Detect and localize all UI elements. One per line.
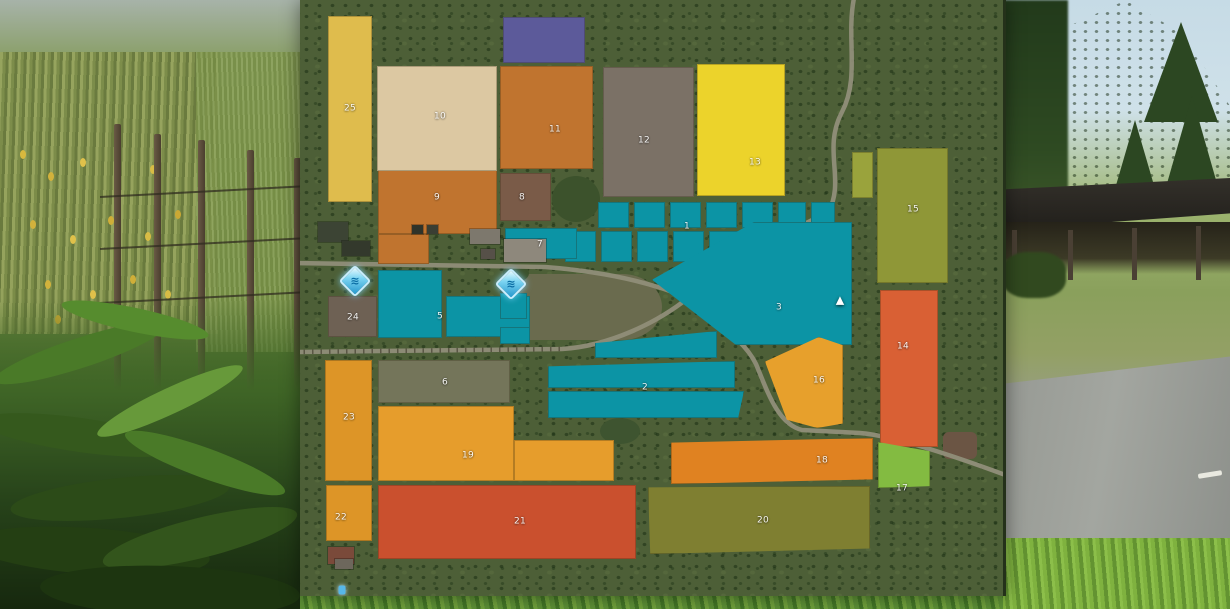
corn-field-scene [0, 0, 302, 609]
grass-strip [300, 594, 1003, 609]
field-number-label: 14 [897, 343, 909, 352]
field-number-label: 7 [537, 241, 543, 250]
field-number-label: 17 [896, 485, 908, 494]
barn-post [1068, 230, 1073, 280]
farm-road-scene [1002, 0, 1230, 609]
field-number-label: 12 [638, 137, 650, 146]
field-number-label: 16 [813, 377, 825, 386]
field-number-label: 15 [907, 206, 919, 215]
field-number-label: 2 [642, 384, 648, 393]
barn-post [1132, 228, 1137, 280]
field-number-label: 18 [816, 457, 828, 466]
field-number-label: 9 [434, 194, 440, 203]
dark-conifers [1002, 0, 1068, 210]
field-number-label: 25 [344, 105, 356, 114]
farm-map-overlay[interactable]: ≋≋▲ 123567891011121314151617181920212223… [300, 0, 1006, 596]
field-number-label: 19 [462, 452, 474, 461]
barn-post [1196, 226, 1201, 280]
field-number-label: 10 [434, 113, 446, 122]
game-screenshot: ≋≋▲ 123567891011121314151617181920212223… [0, 0, 1230, 609]
field-number-label: 20 [757, 517, 769, 526]
roadside-grass [1002, 538, 1230, 609]
field-number-label: 1 [684, 223, 690, 232]
foreground-foliage [0, 298, 310, 609]
field-number-label: 11 [549, 126, 561, 135]
field-number-label: 5 [437, 313, 443, 322]
field-number-label: 21 [514, 518, 526, 527]
labels-layer: 1235678910111213141516171819202122232425 [300, 0, 1003, 596]
field-number-label: 23 [343, 414, 355, 423]
field-number-label: 6 [442, 379, 448, 388]
field-number-label: 3 [776, 304, 782, 313]
field-number-label: 22 [335, 514, 347, 523]
field-number-label: 8 [519, 194, 525, 203]
field-number-label: 24 [347, 314, 359, 323]
field-number-label: 13 [749, 159, 761, 168]
hedge [1002, 252, 1066, 298]
corn-cobs [20, 150, 26, 159]
